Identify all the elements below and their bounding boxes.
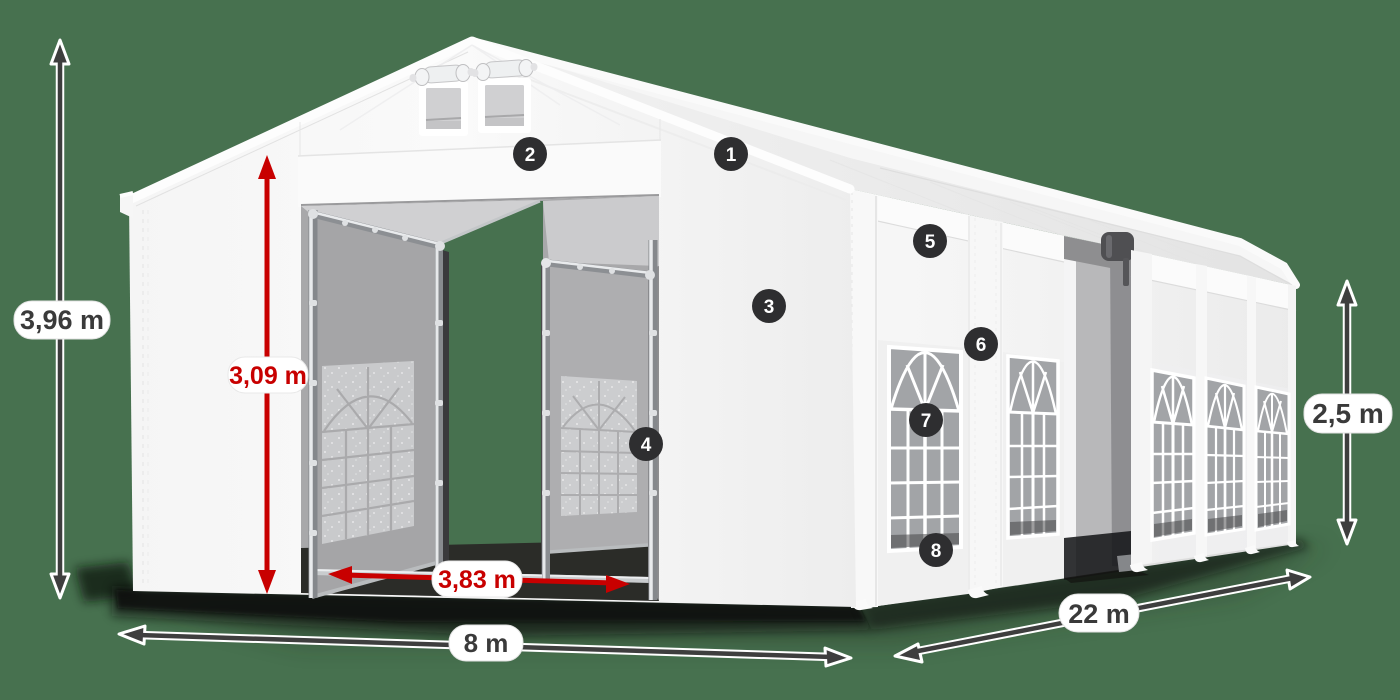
svg-text:3,09 m: 3,09 m	[229, 362, 307, 390]
svg-text:22 m: 22 m	[1068, 599, 1130, 629]
svg-text:8 m: 8 m	[464, 628, 509, 658]
svg-text:3,96 m: 3,96 m	[20, 305, 104, 335]
svg-text:1: 1	[726, 145, 737, 166]
svg-text:6: 6	[976, 335, 987, 356]
svg-text:2,5 m: 2,5 m	[1312, 398, 1384, 429]
svg-text:3: 3	[764, 297, 775, 318]
svg-text:2: 2	[525, 145, 536, 166]
svg-text:5: 5	[925, 232, 936, 253]
svg-text:7: 7	[921, 411, 932, 432]
svg-text:8: 8	[931, 541, 942, 562]
svg-text:4: 4	[641, 435, 652, 456]
svg-text:3,83 m: 3,83 m	[438, 566, 516, 594]
